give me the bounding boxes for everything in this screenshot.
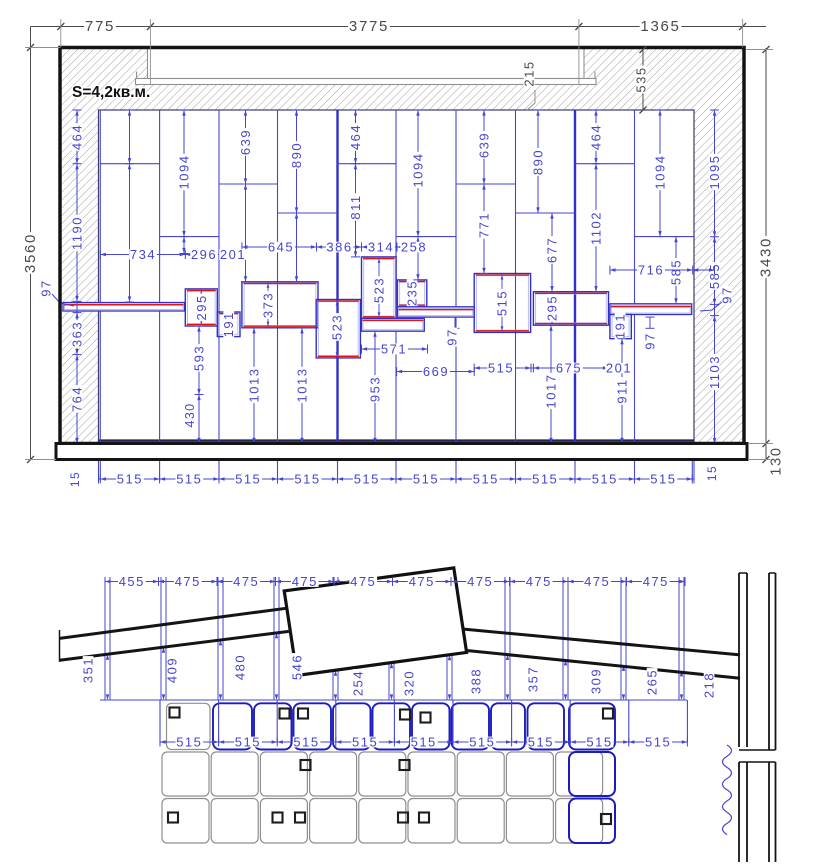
- svg-text:475: 475: [350, 574, 376, 589]
- svg-text:677: 677: [545, 237, 560, 263]
- svg-text:464: 464: [589, 124, 604, 150]
- svg-text:716: 716: [638, 263, 664, 278]
- svg-text:1094: 1094: [653, 155, 668, 190]
- svg-text:515: 515: [235, 472, 261, 487]
- svg-text:386: 386: [326, 240, 352, 255]
- svg-text:97: 97: [643, 332, 658, 349]
- svg-text:1013: 1013: [295, 368, 310, 403]
- svg-text:515: 515: [592, 472, 618, 487]
- svg-text:1095: 1095: [707, 155, 722, 190]
- svg-text:475: 475: [233, 574, 259, 589]
- svg-text:1103: 1103: [707, 355, 722, 389]
- svg-text:1102: 1102: [589, 211, 604, 245]
- svg-text:475: 475: [526, 574, 552, 589]
- svg-text:546: 546: [290, 654, 305, 680]
- svg-text:515: 515: [352, 735, 378, 750]
- svg-text:764: 764: [70, 386, 85, 412]
- svg-text:201: 201: [220, 247, 246, 262]
- svg-text:201: 201: [606, 361, 632, 376]
- svg-text:475: 475: [292, 574, 318, 589]
- svg-text:475: 475: [175, 574, 201, 589]
- svg-text:639: 639: [238, 129, 253, 155]
- svg-text:309: 309: [589, 668, 604, 694]
- svg-text:295: 295: [545, 295, 560, 321]
- svg-text:15: 15: [68, 471, 82, 487]
- svg-text:215: 215: [522, 60, 537, 86]
- svg-text:363: 363: [70, 321, 85, 347]
- svg-text:295: 295: [194, 294, 209, 320]
- svg-text:515: 515: [294, 472, 320, 487]
- svg-text:97: 97: [720, 286, 735, 303]
- svg-text:515: 515: [528, 735, 554, 750]
- svg-text:373: 373: [261, 292, 276, 318]
- svg-text:265: 265: [645, 669, 660, 695]
- svg-text:734: 734: [130, 247, 156, 262]
- svg-text:3775: 3775: [349, 18, 389, 35]
- svg-text:3560: 3560: [22, 233, 39, 273]
- svg-text:430: 430: [183, 402, 197, 427]
- svg-text:464: 464: [70, 124, 85, 150]
- svg-text:15: 15: [705, 465, 719, 481]
- svg-text:1190: 1190: [70, 216, 85, 250]
- svg-text:S=4,2кв.м.: S=4,2кв.м.: [72, 84, 150, 101]
- svg-text:515: 515: [176, 735, 202, 750]
- svg-text:480: 480: [233, 654, 248, 680]
- svg-text:515: 515: [176, 472, 202, 487]
- svg-text:191: 191: [613, 313, 628, 339]
- svg-text:515: 515: [235, 735, 261, 750]
- svg-text:97: 97: [39, 279, 54, 296]
- svg-text:890: 890: [531, 149, 546, 175]
- svg-text:523: 523: [372, 277, 387, 303]
- svg-text:571: 571: [381, 342, 407, 357]
- svg-text:409: 409: [165, 657, 180, 683]
- svg-text:1094: 1094: [411, 153, 426, 188]
- svg-text:475: 475: [643, 574, 669, 589]
- svg-text:911: 911: [615, 378, 630, 403]
- svg-text:585: 585: [669, 259, 684, 285]
- svg-text:515: 515: [586, 735, 612, 750]
- svg-text:388: 388: [469, 668, 484, 694]
- svg-text:890: 890: [289, 142, 304, 168]
- svg-text:515: 515: [495, 290, 510, 316]
- svg-text:1013: 1013: [247, 368, 262, 403]
- svg-text:254: 254: [351, 670, 366, 696]
- svg-text:523: 523: [330, 314, 345, 340]
- svg-text:515: 515: [293, 735, 319, 750]
- svg-text:97: 97: [445, 328, 460, 345]
- svg-text:296: 296: [191, 247, 217, 262]
- svg-text:771: 771: [477, 212, 492, 238]
- svg-text:515: 515: [117, 472, 143, 487]
- svg-text:669: 669: [423, 364, 449, 379]
- svg-text:314: 314: [368, 240, 394, 255]
- svg-text:1365: 1365: [640, 18, 680, 35]
- svg-text:645: 645: [268, 240, 294, 255]
- svg-text:515: 515: [650, 472, 676, 487]
- svg-text:357: 357: [526, 666, 541, 692]
- svg-text:515: 515: [354, 472, 380, 487]
- svg-text:320: 320: [402, 670, 417, 696]
- svg-text:515: 515: [488, 361, 514, 376]
- svg-text:515: 515: [473, 472, 499, 487]
- svg-text:258: 258: [401, 240, 427, 255]
- svg-text:455: 455: [119, 574, 145, 589]
- svg-text:464: 464: [348, 124, 363, 150]
- svg-text:593: 593: [192, 345, 207, 371]
- svg-text:515: 515: [413, 472, 439, 487]
- svg-text:351: 351: [81, 657, 96, 683]
- svg-text:218: 218: [702, 672, 717, 698]
- svg-text:515: 515: [645, 735, 671, 750]
- svg-text:639: 639: [477, 132, 492, 158]
- svg-text:953: 953: [368, 376, 383, 402]
- svg-text:535: 535: [634, 66, 649, 92]
- svg-text:1017: 1017: [544, 374, 559, 409]
- svg-text:775: 775: [85, 18, 115, 35]
- svg-text:475: 475: [409, 574, 435, 589]
- svg-text:515: 515: [411, 735, 437, 750]
- svg-text:675: 675: [556, 361, 582, 376]
- svg-text:475: 475: [584, 574, 610, 589]
- svg-text:515: 515: [469, 735, 495, 750]
- svg-text:475: 475: [467, 574, 493, 589]
- svg-text:1094: 1094: [177, 155, 192, 190]
- svg-text:130: 130: [769, 446, 785, 475]
- svg-text:515: 515: [532, 472, 558, 487]
- svg-text:235: 235: [405, 280, 420, 306]
- svg-text:811: 811: [348, 194, 363, 219]
- svg-text:191: 191: [221, 311, 236, 337]
- svg-text:3430: 3430: [758, 237, 775, 277]
